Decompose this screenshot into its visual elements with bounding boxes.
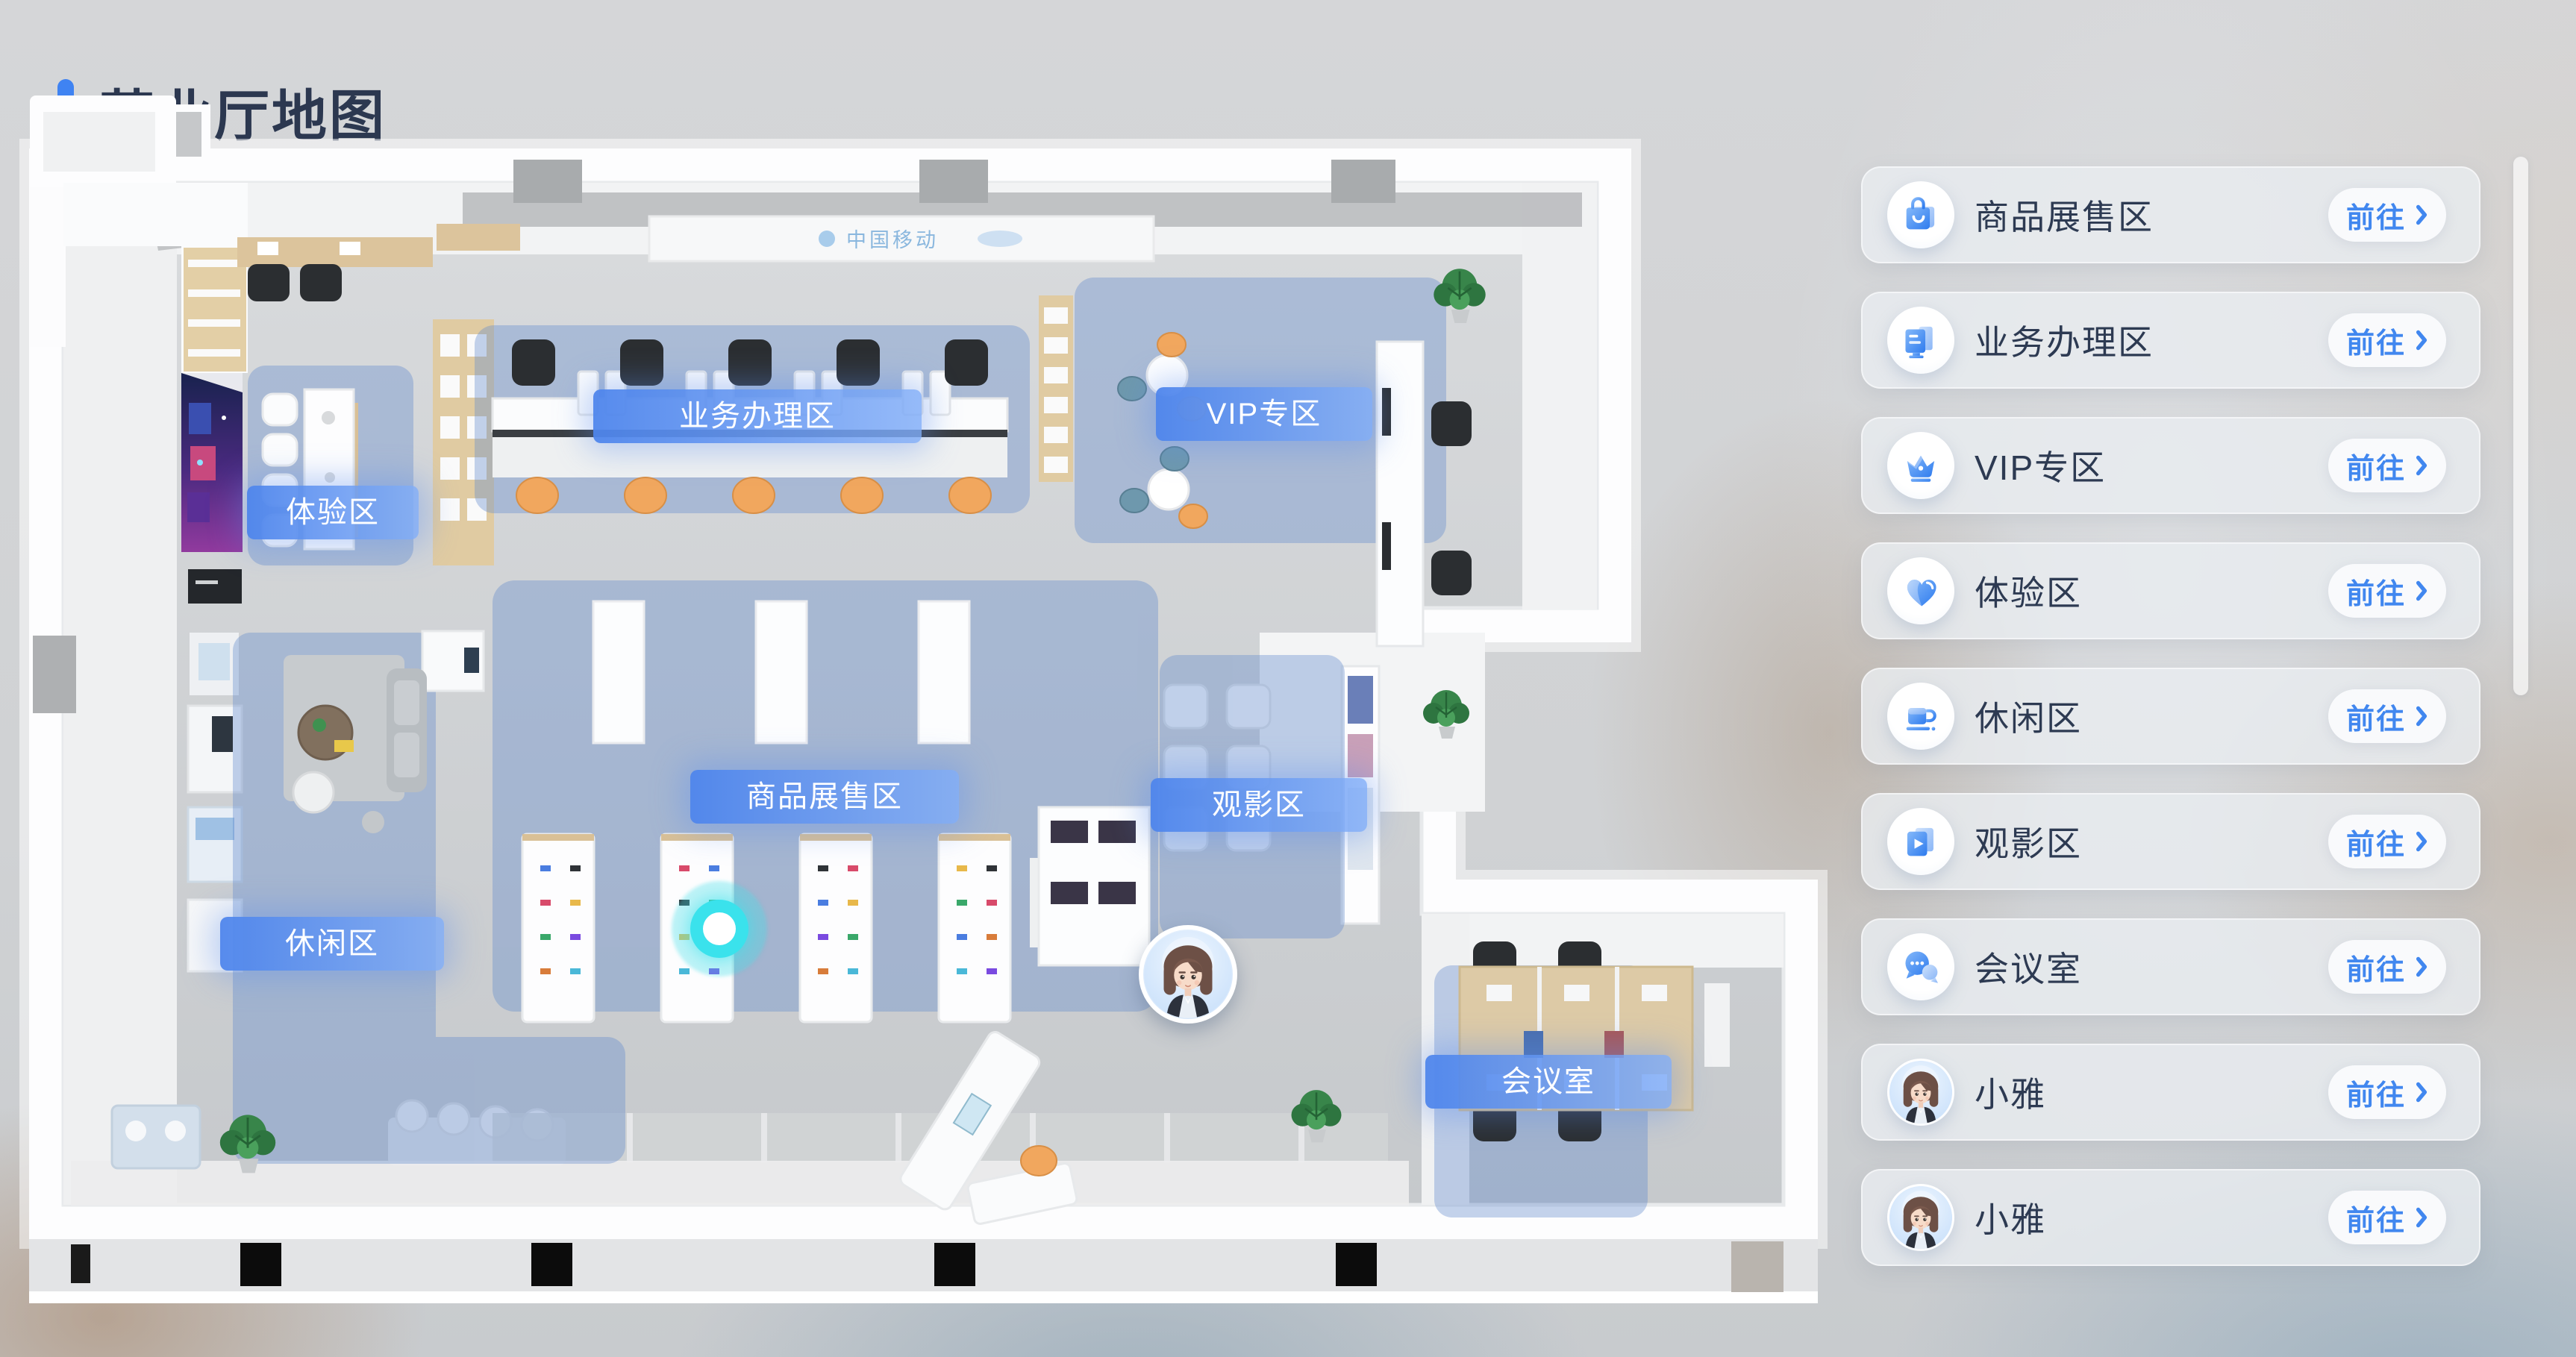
wall-brand-sign: 中国移动	[846, 229, 939, 251]
go-button[interactable]: 前往	[2328, 1191, 2446, 1244]
go-button[interactable]: 前往	[2328, 439, 2446, 492]
chevron-right-icon	[2415, 580, 2428, 602]
avatar-icon	[1143, 930, 1233, 1019]
shopping-bag-icon	[1887, 181, 1954, 248]
sidebar-item-vip[interactable]: VIP专区 前往	[1861, 417, 2480, 514]
sidebar-item-products[interactable]: 商品展售区 前往	[1861, 166, 2480, 263]
go-button[interactable]: 前往	[2328, 564, 2446, 618]
sidebar-item-label: 休闲区	[1975, 692, 2082, 741]
video-icon	[1887, 808, 1954, 875]
chevron-right-icon	[2415, 1081, 2428, 1103]
avatar-icon	[1887, 1184, 1954, 1251]
sidebar-scrollbar[interactable]	[2513, 157, 2528, 695]
sidebar-item-label: 观影区	[1975, 817, 2082, 866]
crown-icon	[1887, 432, 1954, 499]
sidebar-item-cinema[interactable]: 观影区 前往	[1861, 793, 2480, 890]
sidebar-item-xiaoya-2[interactable]: 小雅 前往	[1861, 1169, 2480, 1266]
go-button[interactable]: 前往	[2328, 815, 2446, 868]
zone-label-meeting: 会议室	[1425, 1055, 1672, 1109]
chevron-right-icon	[2415, 329, 2428, 351]
sidebar-item-label: 商品展售区	[1975, 190, 2154, 239]
heart-icon	[1887, 557, 1954, 624]
zone-label-products: 商品展售区	[690, 770, 959, 824]
sidebar: 商品展售区 前往 业务办理区 前往 VIP专区 前往 体验区	[1861, 166, 2480, 1266]
go-button[interactable]: 前往	[2328, 689, 2446, 743]
monitor-icon	[1887, 307, 1954, 374]
go-button[interactable]: 前往	[2328, 313, 2446, 367]
zone-label-experience: 体验区	[247, 486, 419, 539]
go-button[interactable]: 前往	[2328, 1065, 2446, 1119]
coffee-cup-icon	[1887, 683, 1954, 750]
sidebar-item-label: 小雅	[1975, 1193, 2046, 1242]
map-avatar-xiaoya	[1139, 925, 1237, 1024]
sidebar-item-label: 小雅	[1975, 1068, 2046, 1117]
chevron-right-icon	[2415, 705, 2428, 727]
sidebar-item-label: 会议室	[1975, 942, 2082, 991]
sidebar-item-meeting[interactable]: 会议室 前往	[1861, 918, 2480, 1015]
hall-map-screen: 营业厅地图 中国移动	[0, 0, 2576, 1357]
chevron-right-icon	[2415, 956, 2428, 978]
chevron-right-icon	[2415, 830, 2428, 853]
sidebar-item-label: 业务办理区	[1975, 316, 2154, 365]
sidebar-item-experience[interactable]: 体验区 前往	[1861, 542, 2480, 639]
sidebar-item-xiaoya-1[interactable]: 小雅 前往	[1861, 1044, 2480, 1141]
zone-label-vip: VIP专区	[1156, 387, 1372, 441]
sidebar-item-label: 体验区	[1975, 566, 2082, 615]
sidebar-item-leisure[interactable]: 休闲区 前往	[1861, 668, 2480, 765]
chevron-right-icon	[2415, 454, 2428, 477]
chevron-right-icon	[2415, 1206, 2428, 1229]
zone-label-cinema: 观影区	[1151, 778, 1367, 832]
chat-bubbles-icon	[1887, 933, 1954, 1000]
chevron-right-icon	[2415, 204, 2428, 226]
zone-label-business: 业务办理区	[593, 389, 922, 443]
location-core	[703, 912, 736, 945]
go-button[interactable]: 前往	[2328, 188, 2446, 242]
go-button[interactable]: 前往	[2328, 940, 2446, 994]
sidebar-item-business[interactable]: 业务办理区 前往	[1861, 292, 2480, 389]
avatar-icon	[1887, 1059, 1954, 1126]
zone-label-leisure: 休闲区	[220, 917, 444, 971]
sidebar-item-label: VIP专区	[1975, 441, 2106, 490]
